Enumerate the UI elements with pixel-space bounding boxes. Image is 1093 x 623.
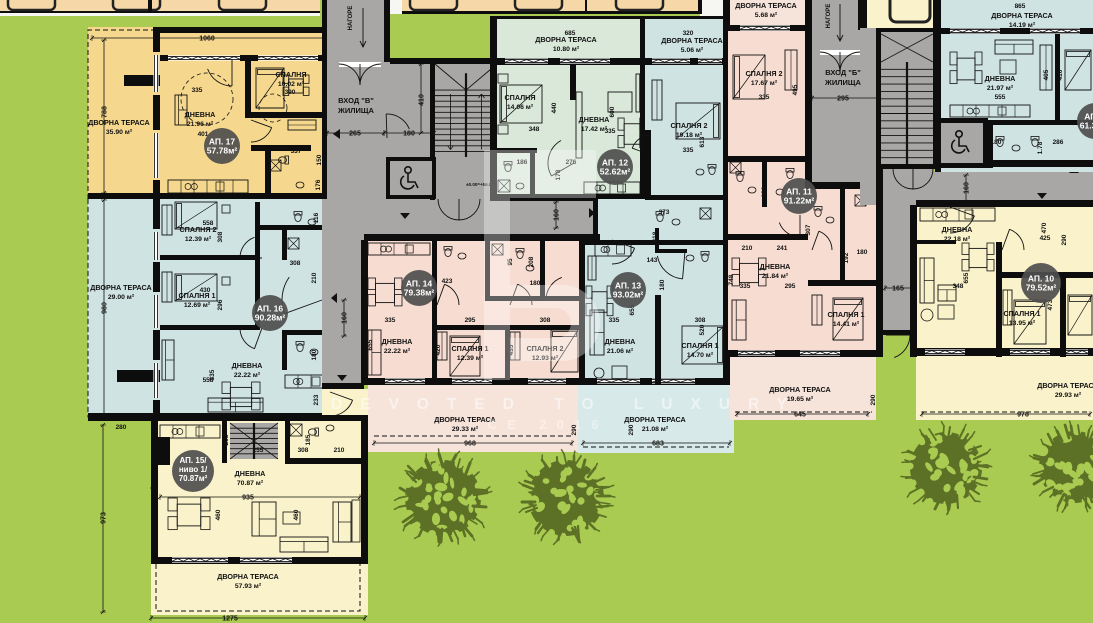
svg-text:290: 290	[870, 394, 877, 405]
svg-text:460: 460	[293, 509, 300, 520]
svg-text:335: 335	[609, 317, 620, 324]
svg-text:180: 180	[659, 279, 666, 290]
svg-text:21.06 м²: 21.06 м²	[607, 348, 634, 355]
svg-text:ДВОРНА ТЕРАСА: ДВОРНА ТЕРАСА	[1037, 381, 1093, 390]
svg-text:22.18 м²: 22.18 м²	[944, 236, 971, 243]
svg-text:865: 865	[1015, 3, 1026, 10]
svg-text:176: 176	[315, 179, 322, 190]
svg-text:СПАЛНЯ 1: СПАЛНЯ 1	[827, 310, 864, 319]
svg-text:295: 295	[465, 317, 476, 324]
svg-text:160: 160	[554, 209, 561, 221]
svg-text:90.28м²: 90.28м²	[255, 313, 286, 323]
svg-text:180: 180	[311, 349, 318, 360]
svg-text:788: 788	[102, 106, 109, 118]
svg-text:418: 418	[652, 231, 659, 242]
svg-text:ДВОРНА ТЕРАСА: ДВОРНА ТЕРАСА	[434, 415, 495, 424]
svg-text:70.87м²: 70.87м²	[179, 474, 208, 483]
svg-text:СПАЛНЯ 1: СПАЛНЯ 1	[451, 344, 488, 353]
svg-text:280: 280	[116, 424, 127, 431]
svg-text:978: 978	[1017, 412, 1029, 419]
svg-text:17.67 м²: 17.67 м²	[751, 80, 778, 87]
svg-text:93.02м²: 93.02м²	[613, 290, 644, 300]
svg-text:373: 373	[659, 209, 670, 216]
svg-text:70.87 м²: 70.87 м²	[237, 480, 264, 487]
svg-text:13.95 м²: 13.95 м²	[1009, 320, 1036, 327]
svg-text:600: 600	[609, 106, 616, 117]
svg-text:255: 255	[253, 447, 264, 454]
svg-text:160: 160	[342, 312, 349, 324]
svg-text:980: 980	[102, 302, 109, 314]
svg-text:СПАЛНЯ: СПАЛНЯ	[504, 93, 535, 102]
svg-text:5.06 м²: 5.06 м²	[681, 47, 704, 54]
svg-text:22.22 м²: 22.22 м²	[234, 372, 261, 379]
svg-text:79.52м²: 79.52м²	[1026, 283, 1057, 293]
svg-text:ЖИЛИЩА: ЖИЛИЩА	[824, 78, 861, 87]
svg-text:335: 335	[385, 317, 396, 324]
svg-text:29.93 м²: 29.93 м²	[1055, 392, 1082, 399]
svg-text:208: 208	[528, 256, 535, 267]
svg-text:21.96 м²: 21.96 м²	[187, 121, 214, 128]
svg-text:335: 335	[683, 147, 694, 154]
svg-text:ДВОРНА ТЕРАСА: ДВОРНА ТЕРАСА	[88, 118, 149, 127]
svg-text:116: 116	[313, 212, 320, 223]
svg-text:655: 655	[367, 339, 374, 350]
svg-text:5.68 м²: 5.68 м²	[755, 12, 778, 19]
svg-text:ДНЕВНА: ДНЕВНА	[185, 110, 216, 119]
svg-text:655: 655	[963, 272, 970, 283]
svg-text:АП. 15/: АП. 15/	[180, 456, 208, 465]
svg-text:ДНЕВНА: ДНЕВНА	[579, 115, 610, 124]
svg-text:410: 410	[419, 94, 426, 106]
svg-text:295: 295	[837, 96, 849, 103]
svg-text:307: 307	[805, 224, 812, 235]
svg-text:10.02 м²: 10.02 м²	[278, 81, 305, 88]
svg-text:14.06 м²: 14.06 м²	[507, 104, 534, 111]
svg-text:296: 296	[217, 299, 224, 310]
svg-text:973: 973	[101, 512, 108, 524]
svg-text:210: 210	[334, 447, 345, 454]
svg-text:1.78: 1.78	[1037, 141, 1044, 154]
svg-text:290: 290	[1061, 234, 1068, 245]
svg-text:199: 199	[761, 186, 768, 197]
svg-text:185: 185	[305, 434, 312, 445]
svg-text:335: 335	[192, 87, 203, 94]
svg-text:ДНЕВНА: ДНЕВНА	[942, 225, 973, 234]
svg-text:290: 290	[628, 424, 635, 435]
svg-text:520: 520	[699, 324, 706, 335]
svg-text:460: 460	[215, 509, 222, 520]
svg-text:208: 208	[223, 434, 230, 445]
svg-text:12.39 м²: 12.39 м²	[185, 236, 212, 243]
svg-text:968: 968	[464, 441, 476, 448]
svg-text:241: 241	[777, 245, 788, 252]
svg-text:405: 405	[1043, 69, 1050, 80]
svg-text:308: 308	[290, 260, 301, 267]
svg-text:СПАЛНЯ 1: СПАЛНЯ 1	[681, 341, 718, 350]
svg-text:425: 425	[1040, 235, 1051, 242]
svg-text:12.39 м²: 12.39 м²	[457, 355, 484, 362]
svg-text:14.70 м²: 14.70 м²	[687, 352, 714, 359]
svg-text:ДВОРНА ТЕРАСА: ДВОРНА ТЕРАСА	[624, 415, 685, 424]
svg-text:613: 613	[699, 136, 706, 147]
svg-text:143: 143	[647, 257, 658, 264]
svg-text:CE 2016: CE 2016	[488, 417, 609, 432]
svg-text:308: 308	[298, 447, 309, 454]
svg-text:52.62м²: 52.62м²	[600, 167, 631, 177]
svg-text:91.22м²: 91.22м²	[784, 196, 815, 206]
svg-text:308: 308	[695, 317, 706, 324]
svg-text:337: 337	[291, 148, 302, 155]
svg-text:29.33 м²: 29.33 м²	[452, 426, 479, 433]
svg-text:223: 223	[363, 264, 370, 275]
svg-text:335: 335	[759, 94, 770, 101]
svg-text:61.32м²: 61.32м²	[1080, 121, 1093, 131]
svg-text:НАГОРЕ: НАГОРЕ	[348, 6, 354, 31]
svg-text:DEVOTED TO LUXURY: DEVOTED TO LUXURY	[331, 396, 805, 413]
svg-text:ДВОРНА ТЕРАСА: ДВОРНА ТЕРАСА	[735, 1, 796, 10]
svg-text:935: 935	[242, 495, 254, 502]
svg-text:21.84 м²: 21.84 м²	[762, 273, 789, 280]
svg-text:286: 286	[1053, 139, 1064, 146]
svg-text:440: 440	[551, 102, 558, 113]
svg-text:558: 558	[203, 220, 214, 227]
svg-text:ДНЕВНА: ДНЕВНА	[235, 469, 266, 478]
svg-text:748: 748	[728, 274, 735, 285]
svg-text:180: 180	[991, 139, 1002, 146]
svg-text:410: 410	[1057, 69, 1064, 80]
svg-text:ДВОРНА ТЕРАСА: ДВОРНА ТЕРАСА	[661, 36, 722, 45]
svg-text:555: 555	[995, 94, 1006, 101]
svg-text:165: 165	[892, 286, 904, 293]
svg-text:420: 420	[435, 344, 442, 355]
svg-text:685: 685	[565, 30, 576, 37]
svg-text:210: 210	[742, 245, 753, 252]
svg-text:29.00 м²: 29.00 м²	[108, 294, 135, 301]
svg-text:335: 335	[209, 369, 216, 380]
svg-text:308: 308	[217, 231, 224, 242]
svg-text:12.69 м²: 12.69 м²	[184, 302, 211, 309]
svg-text:160: 160	[964, 182, 971, 194]
svg-text:57.78м²: 57.78м²	[207, 146, 238, 156]
svg-text:308: 308	[540, 317, 551, 324]
svg-text:295: 295	[785, 283, 796, 290]
svg-text:265: 265	[349, 131, 361, 138]
svg-text:НАГОРЕ: НАГОРЕ	[826, 4, 832, 29]
svg-text:180: 180	[857, 249, 868, 256]
svg-text:14.41 м²: 14.41 м²	[833, 321, 860, 328]
svg-text:180: 180	[403, 131, 415, 138]
svg-text:21.08 м²: 21.08 м²	[642, 426, 669, 433]
svg-text:ВХОД "Б": ВХОД "Б"	[825, 68, 861, 77]
svg-text:ЖИЛИЩА: ЖИЛИЩА	[337, 106, 374, 115]
svg-text:335: 335	[740, 283, 751, 290]
svg-text:150: 150	[316, 154, 323, 165]
svg-text:1060: 1060	[199, 36, 215, 43]
svg-text:192: 192	[843, 252, 850, 263]
svg-text:423: 423	[442, 278, 453, 285]
svg-text:14.19 м²: 14.19 м²	[1009, 22, 1036, 29]
svg-text:57.93 м²: 57.93 м²	[235, 583, 262, 590]
svg-text:СПАЛНЯ: СПАЛНЯ	[275, 70, 306, 79]
svg-text:10.80 м²: 10.80 м²	[553, 46, 580, 53]
svg-text:ДВОРНА ТЕРАСА: ДВОРНА ТЕРАСА	[90, 283, 151, 292]
svg-text:1275: 1275	[222, 616, 238, 623]
svg-text:ниво 1/: ниво 1/	[179, 465, 208, 474]
svg-text:430: 430	[200, 287, 211, 294]
svg-text:495: 495	[792, 84, 799, 95]
svg-text:ДНЕВНА: ДНЕВНА	[232, 361, 263, 370]
svg-text:79.38м²: 79.38м²	[404, 288, 435, 298]
svg-text:35.90 м²: 35.90 м²	[106, 129, 133, 136]
svg-text:233: 233	[313, 394, 320, 405]
svg-text:ДНЕВНА: ДНЕВНА	[760, 262, 791, 271]
svg-text:ВХОД "В": ВХОД "В"	[338, 96, 374, 105]
svg-text:210: 210	[311, 272, 318, 283]
svg-text:ДНЕВНА: ДНЕВНА	[605, 337, 636, 346]
svg-text:ДВОРНА ТЕРАСА: ДВОРНА ТЕРАСА	[769, 385, 830, 394]
svg-text:ДВОРНА ТЕРАСА: ДВОРНА ТЕРАСА	[991, 11, 1052, 20]
svg-text:ДНЕВНА: ДНЕВНА	[985, 74, 1016, 83]
svg-text:21.97 м²: 21.97 м²	[987, 85, 1014, 92]
svg-text:ДВОРНА ТЕРАСА: ДВОРНА ТЕРАСА	[217, 572, 278, 581]
svg-text:390: 390	[285, 89, 296, 96]
svg-text:348: 348	[529, 126, 540, 133]
svg-text:320: 320	[683, 30, 694, 37]
svg-text:683: 683	[652, 441, 664, 448]
svg-text:ДНЕВНА: ДНЕВНА	[382, 337, 413, 346]
svg-text:СПАЛНЯ 2: СПАЛНЯ 2	[670, 121, 707, 130]
svg-text:22.22 м²: 22.22 м²	[384, 348, 411, 355]
svg-text:СПАЛНЯ 1: СПАЛНЯ 1	[1003, 309, 1040, 318]
svg-text:335: 335	[605, 128, 616, 135]
svg-text:470: 470	[1041, 222, 1048, 233]
svg-text:СПАЛНЯ 2: СПАЛНЯ 2	[745, 69, 782, 78]
